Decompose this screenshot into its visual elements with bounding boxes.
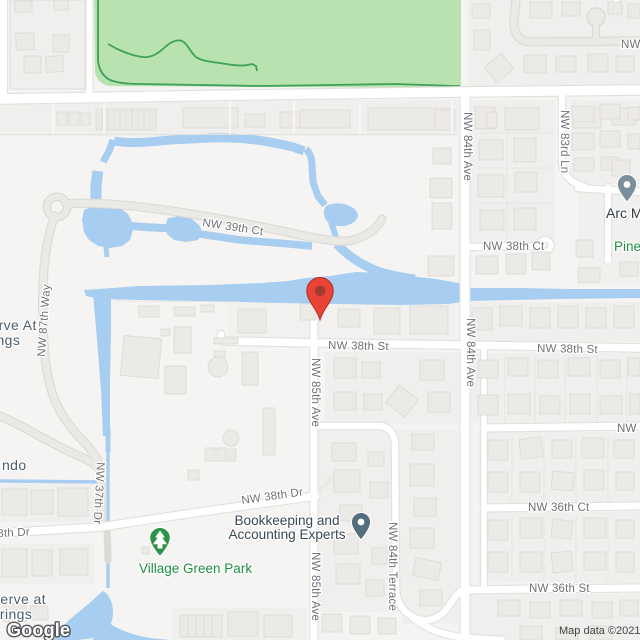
svg-text:Pine: Pine — [614, 239, 640, 254]
svg-text:Google: Google — [7, 620, 70, 640]
svg-text:NW 83rd Ln: NW 83rd Ln — [558, 110, 570, 173]
svg-text:Accounting Experts: Accounting Experts — [228, 527, 345, 542]
svg-text:ndo: ndo — [2, 457, 27, 473]
svg-text:NW 38th St: NW 38th St — [328, 340, 390, 353]
svg-text:NW 38th Ct: NW 38th Ct — [483, 241, 545, 253]
svg-text:Preserve At: Preserve At — [0, 317, 37, 333]
svg-text:NW 36th St: NW 36th St — [529, 583, 590, 595]
svg-text:NW 84th Terrace: NW 84th Terrace — [386, 522, 398, 611]
svg-text:Village Green Park: Village Green Park — [139, 561, 252, 576]
svg-text:Springs: Springs — [0, 332, 20, 348]
svg-text:Preserve at: Preserve at — [0, 591, 46, 607]
svg-text:NW 85th Ave: NW 85th Ave — [309, 358, 321, 427]
svg-text:NW 3: NW 3 — [621, 39, 640, 51]
svg-text:NW 38th St: NW 38th St — [537, 343, 599, 356]
svg-text:NW 84th Ave: NW 84th Ave — [461, 112, 473, 181]
svg-text:NW 36th Ct: NW 36th Ct — [528, 502, 590, 514]
svg-text:NW 84th Ave: NW 84th Ave — [464, 318, 476, 387]
svg-text:Bookkeeping and: Bookkeeping and — [234, 513, 339, 528]
svg-text:NW 85th Ave: NW 85th Ave — [309, 552, 321, 621]
svg-text:NW 3: NW 3 — [617, 423, 640, 435]
svg-text:Arc M: Arc M — [606, 205, 640, 221]
